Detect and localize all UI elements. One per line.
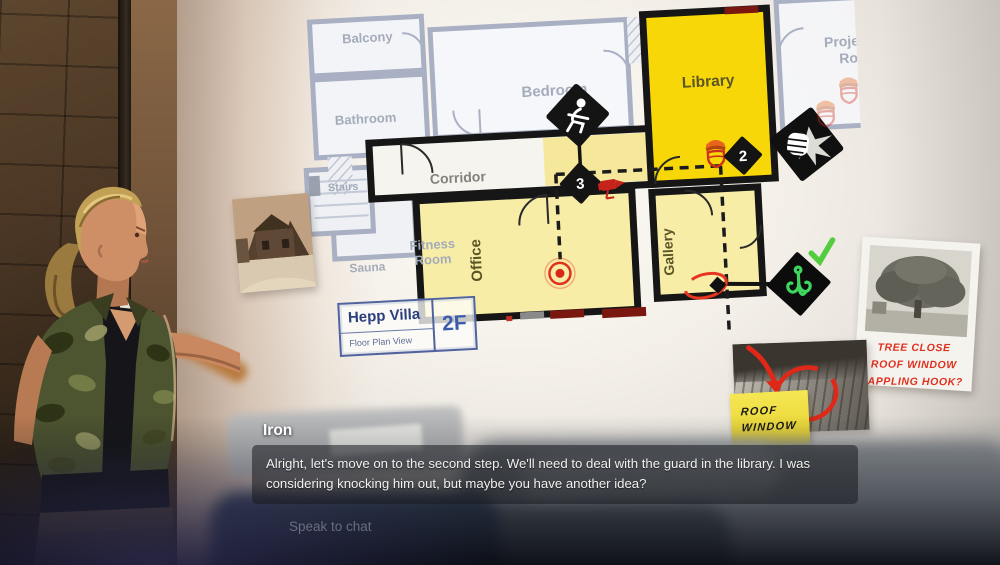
dialogue-speaker-name: Iron: [263, 422, 292, 440]
room-label-library: Library: [681, 72, 735, 92]
dialogue-text: Alright, let's move on to the second ste…: [266, 454, 844, 494]
plan-legend-text: Hepp Villa Floor Plan View: [339, 300, 435, 355]
room-label-stairs: Stairs: [328, 181, 359, 195]
tree-photo-image: [865, 245, 972, 337]
tree-note-sheet: TREE CLOSE ROOF WINDOW GRAPPLING HOOK?: [854, 237, 981, 392]
room-label-balcony: Balcony: [342, 29, 394, 47]
tree-photo: [865, 245, 972, 337]
room-label-corridor: Corridor: [429, 168, 486, 187]
dialogue-panel: Alright, let's move on to the second ste…: [252, 445, 858, 504]
target-icon: [544, 258, 576, 290]
plan-legend: Hepp Villa Floor Plan View 2F: [337, 296, 478, 357]
villa-photo: [232, 193, 316, 293]
floor-plan: Balcony Bathroom Stairs Bedroom Fitness …: [294, 0, 871, 366]
room-label-sauna: Sauna: [349, 259, 386, 275]
villa-photo-image: [232, 193, 316, 293]
svg-text:2: 2: [738, 148, 747, 165]
room-label-office: Office: [467, 239, 486, 282]
plan-floor-number: 2F: [433, 298, 476, 350]
plan-subtitle: Floor Plan View: [341, 329, 434, 355]
game-screenshot: Balcony Bathroom Stairs Bedroom Fitness …: [0, 0, 1000, 565]
room-label-gallery: Gallery: [659, 228, 677, 276]
room-label-bathroom: Bathroom: [335, 110, 397, 128]
speak-to-chat-prompt[interactable]: Speak to chat: [289, 519, 372, 534]
svg-text:3: 3: [576, 175, 585, 192]
checkmark-icon: [811, 240, 834, 262]
room-label-fitness-2: Room: [414, 251, 452, 268]
